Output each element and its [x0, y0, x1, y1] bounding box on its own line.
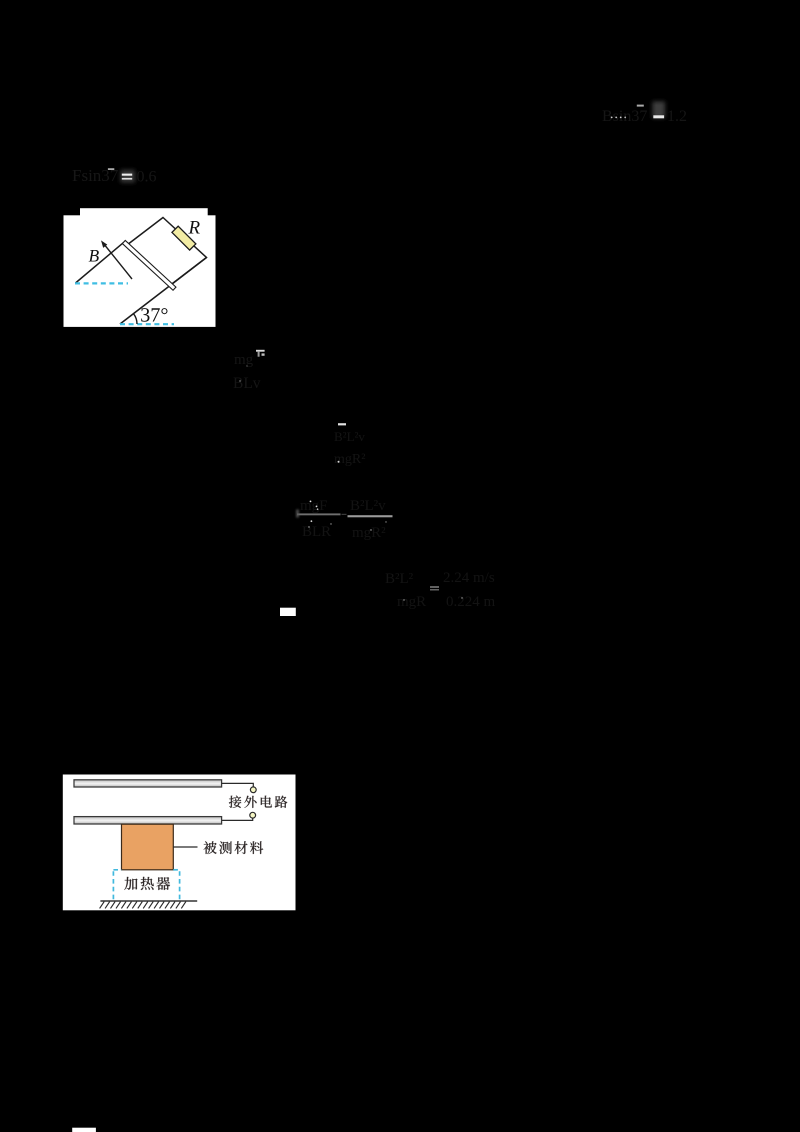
svg-text:mgR²: mgR²	[352, 525, 386, 541]
svg-text:BLv: BLv	[233, 375, 261, 392]
svg-text:mgR²: mgR²	[334, 452, 365, 467]
svg-text:B²L²v: B²L²v	[334, 429, 365, 444]
svg-text:2.24 m/s: 2.24 m/s	[443, 570, 495, 586]
svg-text:0.224 m: 0.224 m	[446, 594, 496, 610]
svg-text:B²L²v: B²L²v	[350, 498, 386, 514]
svg-text:1.2: 1.2	[667, 108, 687, 125]
svg-text:BLR: BLR	[302, 524, 331, 540]
svg-text:mg: mg	[234, 352, 254, 368]
svg-text:B²L²: B²L²	[385, 571, 414, 587]
svg-text:Bsin37: Bsin37	[602, 108, 647, 125]
svg-text:mgR: mgR	[397, 594, 426, 610]
svg-text:0.6: 0.6	[137, 169, 157, 186]
svg-text:mgF: mgF	[300, 498, 328, 514]
